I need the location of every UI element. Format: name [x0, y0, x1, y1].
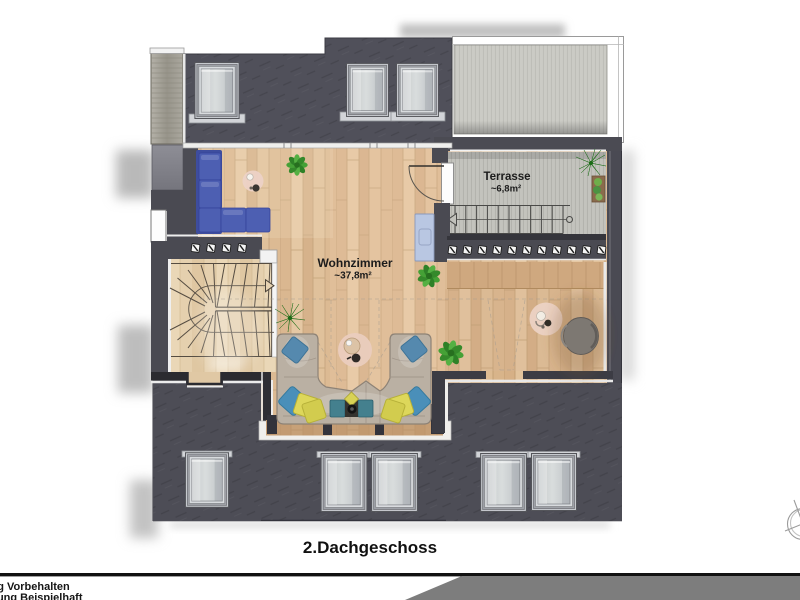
svg-text:~6,8m²: ~6,8m²	[491, 184, 521, 195]
svg-text:2.Dachgeschoss: 2.Dachgeschoss	[303, 538, 437, 557]
svg-text:Wohnzimmer: Wohnzimmer	[317, 256, 392, 270]
svg-text:~37,8m²: ~37,8m²	[334, 271, 372, 282]
svg-text:Einrichtung Beispielhaft: Einrichtung Beispielhaft	[0, 592, 83, 600]
svg-text:Terrasse: Terrasse	[483, 171, 530, 183]
